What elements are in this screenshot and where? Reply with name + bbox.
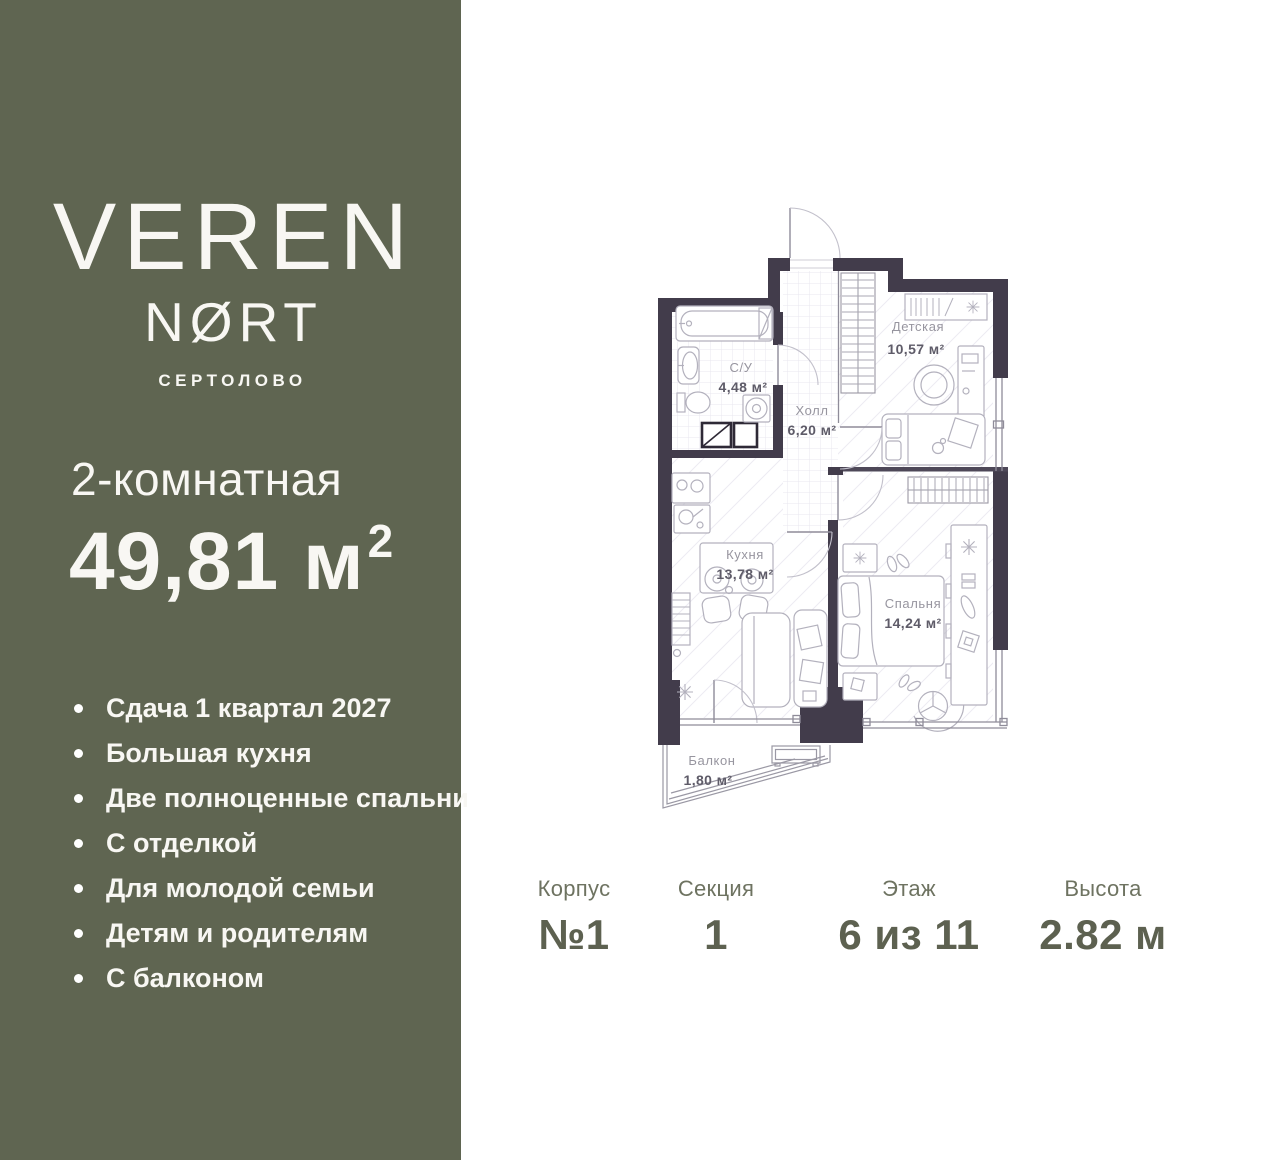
kitchen-counter [672, 473, 710, 533]
entrance-door [790, 208, 840, 268]
bullet-dot [74, 749, 83, 758]
nightstand [843, 673, 877, 700]
nightstand [843, 544, 877, 572]
stat-section: Секция 1 [678, 876, 754, 959]
feature-item: С балконом [72, 964, 469, 992]
bed-nursery [882, 414, 985, 465]
bullet-dot [74, 794, 83, 803]
stat-height: Высота 2.82 м [1039, 876, 1166, 959]
floor-plan: С/У 4,48 м² Холл 6,20 м² Детская 10,57 м… [655, 195, 1015, 820]
dresser [946, 525, 987, 705]
stat-section-label: Секция [678, 876, 754, 902]
room-label-hall: Холл [795, 403, 828, 418]
bullet-dot [74, 929, 83, 938]
stat-height-label: Высота [1039, 876, 1166, 902]
bullet-dot [74, 884, 83, 893]
washing-machine [743, 395, 770, 422]
room-label-bathroom: С/У [729, 360, 752, 375]
stat-floor: Этаж 6 из 11 [838, 876, 979, 959]
feature-item: С отделкой [72, 829, 469, 857]
feature-list: Сдача 1 квартал 2027 Большая кухня Две п… [72, 694, 469, 1009]
room-label-nursery: Детская [892, 319, 944, 334]
apartment-type: 2-комнатная [71, 452, 342, 506]
sink-bathroom [678, 347, 699, 384]
room-label-kitchen: Кухня [726, 547, 764, 562]
wardrobe-bedroom [908, 477, 988, 503]
brand-logo: VEREN NØRT СЕРТОЛОВО [0, 190, 461, 389]
room-area-hall: 6,20 м² [788, 422, 837, 438]
brand-line2: NØRT [6, 295, 461, 350]
sofa [742, 613, 790, 707]
room-area-balcony: 1,80 м² [684, 772, 733, 788]
feature-item: Детям и родителям [72, 919, 469, 947]
room-label-bedroom: Спальня [885, 596, 941, 611]
window-nursery [994, 378, 1004, 471]
apartment-area-value: 49,81 м [69, 516, 365, 607]
bullet-dot [74, 704, 83, 713]
stat-building-label: Корпус [538, 876, 611, 902]
wardrobe-hall [841, 273, 875, 393]
room-area-kitchen: 13,78 м² [716, 566, 773, 582]
room-area-bedroom: 14,24 м² [884, 615, 941, 631]
stat-floor-label: Этаж [838, 876, 979, 902]
room-area-bathroom: 4,48 м² [719, 379, 768, 395]
armchair [794, 610, 827, 707]
bookshelf [905, 294, 987, 320]
apartment-flyer: VEREN NØRT СЕРТОЛОВО 2-комнатная 49,81 м… [0, 0, 1280, 1160]
room-area-nursery: 10,57 м² [887, 341, 944, 357]
bullet-dot [74, 974, 83, 983]
stat-building-value: №1 [538, 911, 611, 959]
toilet [677, 392, 710, 413]
ventilation-shaft [702, 423, 757, 447]
stat-height-value: 2.82 м [1039, 911, 1166, 959]
stat-floor-value: 6 из 11 [838, 911, 979, 959]
bullet-dot [74, 839, 83, 848]
desk [958, 346, 984, 418]
brand-line1: VEREN [7, 190, 461, 285]
brand-location: СЕРТОЛОВО [4, 372, 461, 389]
apartment-area: 49,81 м2 [69, 515, 394, 609]
feature-item: Сдача 1 квартал 2027 [72, 694, 469, 722]
apartment-area-sup: 2 [368, 515, 395, 567]
plant-icon [677, 684, 693, 700]
feature-item: Две полноценные спальни [72, 784, 469, 812]
feature-item: Большая кухня [72, 739, 469, 767]
stat-building: Корпус №1 [538, 876, 611, 959]
stat-section-value: 1 [678, 911, 754, 959]
room-label-balcony: Балкон [688, 753, 735, 768]
feature-item: Для молодой семьи [72, 874, 469, 902]
sidebar: VEREN NØRT СЕРТОЛОВО 2-комнатная 49,81 м… [0, 0, 461, 1160]
